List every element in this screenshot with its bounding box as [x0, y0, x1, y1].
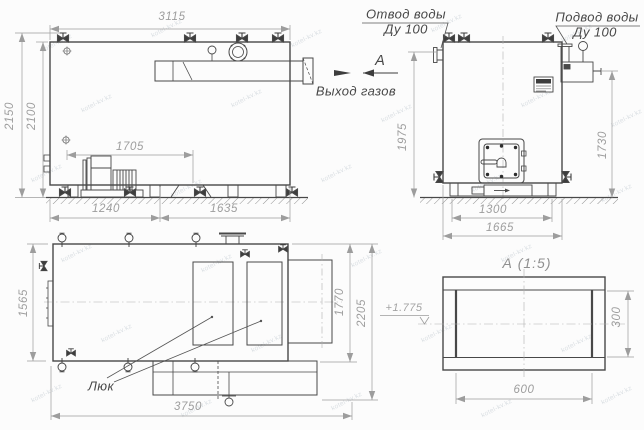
- valve-icon: [58, 33, 69, 42]
- side-view: [44, 33, 313, 204]
- dim-height-to-inlet: 1730: [597, 131, 609, 159]
- dim-overall-height: 2150: [4, 102, 16, 130]
- valve-icon: [124, 358, 132, 372]
- dim-base-front: 1240: [92, 203, 120, 215]
- detail-dimensions: [456, 291, 634, 404]
- label-section-A: А: [375, 53, 385, 69]
- plan-view-dimensions: [27, 244, 378, 420]
- dim-detail-width: 600: [514, 384, 535, 396]
- dim-overall-width: 1665: [486, 222, 514, 234]
- valve-icon: [543, 33, 554, 42]
- drain-valve-icon: [434, 172, 443, 183]
- dim-overall-length: 3115: [158, 11, 185, 23]
- valve-icon: [237, 33, 248, 42]
- dim-base-rear: 1635: [210, 203, 238, 215]
- dim-plan-width: 1565: [18, 289, 30, 317]
- valve-icon: [241, 250, 250, 257]
- label-hatch: Люк: [88, 379, 114, 394]
- label-water-inlet: Подвод воды: [555, 10, 638, 25]
- label-gas-exit: Выход газов: [316, 84, 396, 99]
- valve-icon: [273, 33, 284, 42]
- dim-fan-assembly: 1705: [116, 141, 144, 153]
- valve-icon: [58, 358, 66, 372]
- valve-icon: [185, 33, 196, 42]
- drain-valve-icon: [60, 187, 71, 196]
- plan-view: [39, 233, 342, 406]
- front-view-dimensions: [408, 52, 618, 240]
- valve-icon: [192, 233, 200, 247]
- valve-icon: [67, 349, 76, 356]
- dim-detail-height: 300: [611, 307, 623, 328]
- flue-duct: [155, 61, 303, 81]
- dim-base-width: 1300: [479, 204, 507, 216]
- valve-icon: [39, 261, 47, 270]
- dim-plan-overall-length: 3750: [174, 401, 202, 413]
- chimney-stub: [219, 234, 246, 245]
- hatch-opening: [193, 262, 233, 345]
- nameplate: [534, 77, 553, 92]
- section-arrow-A: [334, 69, 398, 76]
- sensor-port: [208, 46, 216, 54]
- label-water-outlet-dn: Ду 100: [384, 22, 428, 37]
- elevation-value: +1.775: [386, 302, 423, 314]
- boiler-technical-drawing: kotel-kv.kz kotel-kv.kz kotel-kv.kz kote…: [0, 0, 644, 430]
- peephole: [497, 158, 506, 167]
- drawing-linework: [0, 0, 644, 430]
- furnace-door: [479, 139, 526, 183]
- valve-icon: [58, 233, 66, 247]
- gas-duct-plan: [288, 254, 332, 349]
- valve-icon: [125, 233, 133, 247]
- label-water-inlet-dn: Ду 100: [573, 25, 617, 40]
- lifting-lug-icon: [63, 47, 72, 56]
- dim-body-height: 2100: [26, 102, 38, 130]
- water-inlet-pipe: [558, 42, 601, 83]
- drain-valve-icon: [195, 187, 206, 196]
- drain-valve-icon: [562, 172, 571, 183]
- drain-valve-icon: [287, 187, 298, 196]
- flue-assembly-plan: [153, 361, 317, 406]
- door-handle: [481, 160, 497, 164]
- dim-height-to-outlet: 1975: [397, 123, 409, 151]
- detail-view-A: [380, 269, 625, 378]
- label-water-outlet: Отвод воды: [366, 7, 446, 22]
- dim-flue-length: 1770: [334, 288, 346, 316]
- water-outlet-pipe: [434, 48, 444, 63]
- front-view: [420, 33, 618, 204]
- detail-title: А (1:5): [502, 255, 551, 271]
- dim-overall-with-flue: 2205: [356, 299, 368, 327]
- boiler-body-front: [443, 42, 562, 183]
- valve-icon: [459, 33, 470, 42]
- valve-icon: [191, 358, 199, 372]
- hatch-opening: [247, 262, 282, 345]
- elevation-mark: [380, 316, 429, 325]
- lifting-lug-icon: [62, 136, 71, 145]
- side-view-dimensions: [15, 25, 290, 222]
- valve-icon: [279, 245, 288, 252]
